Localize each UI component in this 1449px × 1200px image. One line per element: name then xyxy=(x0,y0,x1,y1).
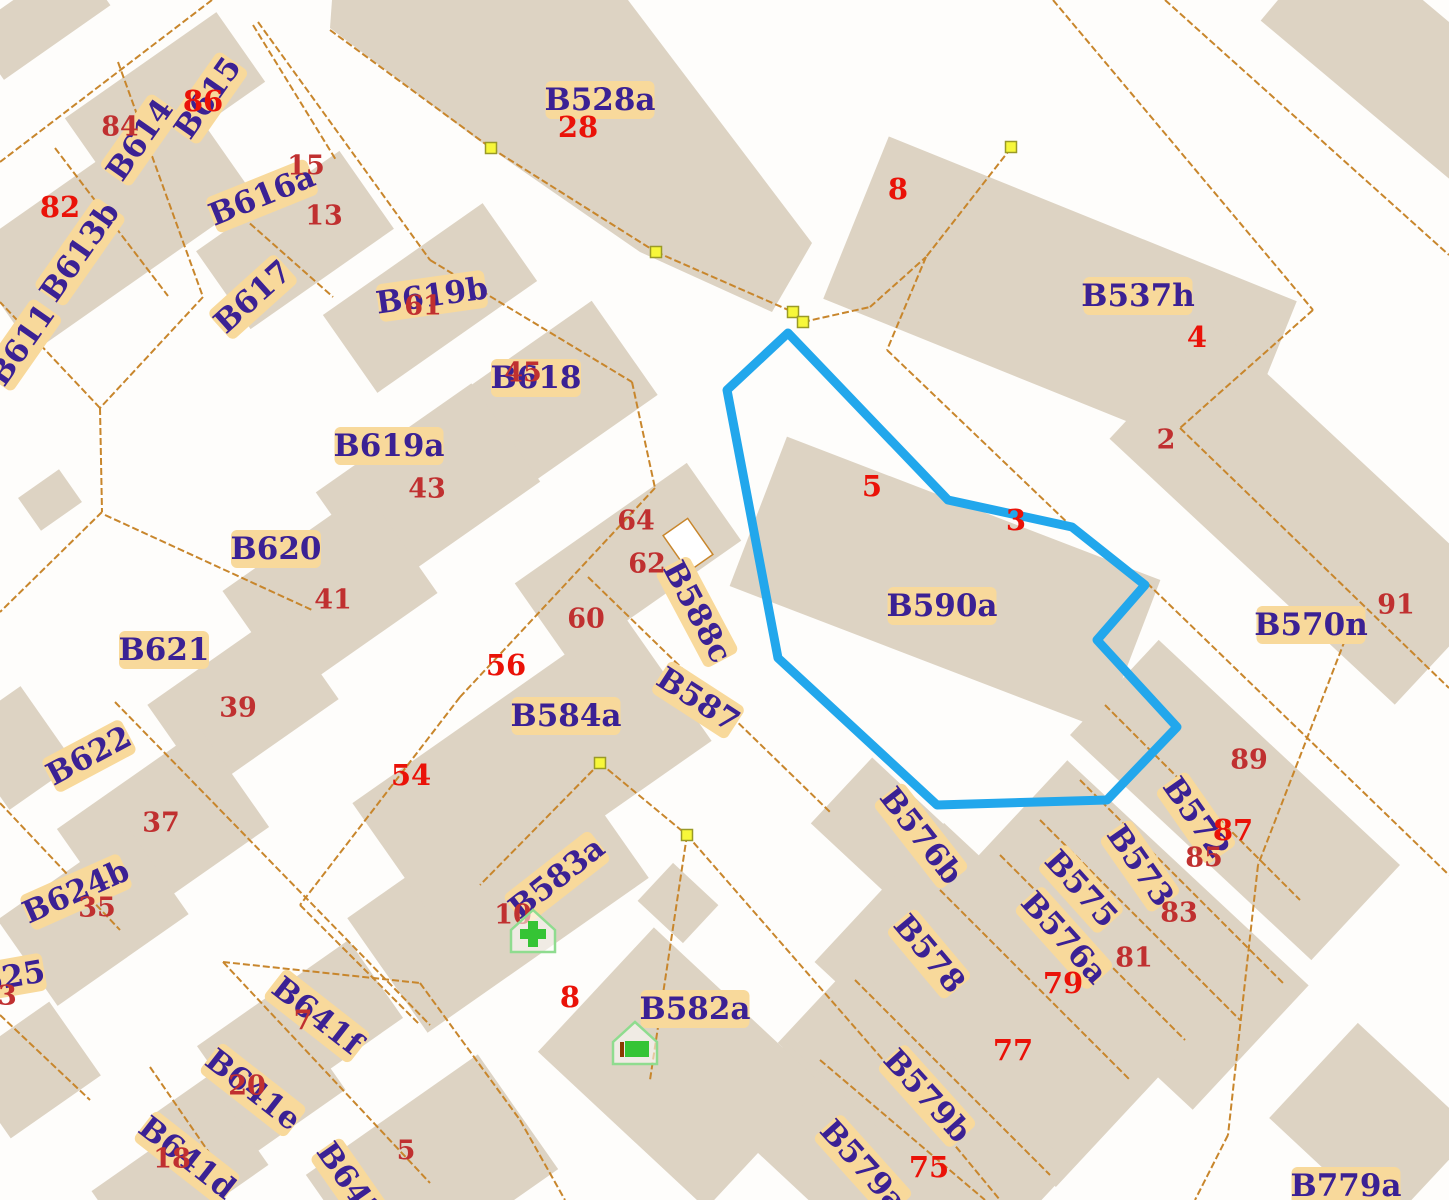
vertex-marker[interactable] xyxy=(1006,142,1017,153)
house-number: 83 xyxy=(1160,898,1198,929)
house-number: 75 xyxy=(909,1150,949,1184)
house-number: 5 xyxy=(397,1136,416,1167)
parcel-line xyxy=(100,408,102,512)
house-number: 77 xyxy=(993,1033,1033,1067)
house-number: 56 xyxy=(486,648,526,682)
building-footprint xyxy=(18,469,82,530)
vertex-marker[interactable] xyxy=(651,247,662,258)
parcel-label[interactable]: B621 xyxy=(119,631,210,669)
house-number: 8 xyxy=(560,980,580,1014)
house-number: 89 xyxy=(1230,745,1268,776)
map-svg: B615B614B613bB611B616aB617B528aB619bB618… xyxy=(0,0,1449,1200)
parcel-label-text: B582a xyxy=(640,991,751,1027)
building-footprint xyxy=(638,863,719,943)
house-number: 28 xyxy=(558,110,598,144)
house-number: 20 xyxy=(228,1071,266,1102)
house-number: 39 xyxy=(219,693,257,724)
parcel-label[interactable]: B619a xyxy=(334,427,445,465)
parcel-label[interactable]: B779a xyxy=(1291,1167,1402,1200)
door-icon xyxy=(620,1042,624,1057)
house-number: 3 xyxy=(1006,503,1026,537)
house-number: 5 xyxy=(862,469,882,503)
house-number: 43 xyxy=(408,474,446,505)
house-number: 91 xyxy=(1377,590,1415,621)
parcel-label-text: B621 xyxy=(119,632,210,668)
building-footprint xyxy=(730,437,1161,730)
parcel-line xyxy=(0,512,102,612)
building-footprint xyxy=(0,1002,101,1139)
house-number: 33 xyxy=(0,981,17,1012)
building-footprint xyxy=(0,0,110,80)
house-number: 86 xyxy=(183,84,223,118)
parcel-label-text: B622 xyxy=(40,719,137,793)
house-number: 18 xyxy=(153,1144,191,1175)
block-icon xyxy=(625,1041,649,1057)
vertex-marker[interactable] xyxy=(682,830,693,841)
house-number: 79 xyxy=(1043,966,1083,1000)
house-number: 84 xyxy=(101,112,139,143)
parcel-label-text: B619a xyxy=(334,428,445,464)
house-number: 54 xyxy=(391,758,431,792)
parcel-line xyxy=(253,25,336,160)
house-number: 13 xyxy=(305,201,343,232)
parcel-label[interactable]: B588c xyxy=(654,555,739,670)
parcel-label[interactable]: B537h xyxy=(1081,277,1194,315)
parcel-label[interactable]: B570n xyxy=(1254,606,1367,644)
house-number: 7 xyxy=(294,1006,313,1037)
house-number: 41 xyxy=(314,585,352,616)
house-number: 37 xyxy=(142,808,180,839)
house-number: 62 xyxy=(628,549,666,580)
parcel-line xyxy=(100,297,203,408)
parcel-label[interactable]: B582a xyxy=(640,990,751,1028)
vertex-marker[interactable] xyxy=(486,143,497,154)
parcel-label-text: B570n xyxy=(1254,607,1367,643)
parcel-label[interactable]: B590a xyxy=(887,587,998,625)
house-number: 64 xyxy=(617,506,655,537)
vertex-marker[interactable] xyxy=(798,317,809,328)
house-number: 85 xyxy=(1185,843,1223,874)
house-number: 61 xyxy=(404,291,442,322)
house-number: 82 xyxy=(40,190,80,224)
cadastral-map[interactable]: B615B614B613bB611B616aB617B528aB619bB618… xyxy=(0,0,1449,1200)
house-number: 8 xyxy=(888,172,908,206)
cross-icon xyxy=(520,929,546,939)
parcel-label-text: B620 xyxy=(231,531,322,567)
house-number: 35 xyxy=(78,893,116,924)
parcel-label-text: B779a xyxy=(1291,1168,1402,1200)
parcel-label[interactable]: B584a xyxy=(511,697,622,735)
house-number: 45 xyxy=(504,358,542,389)
parcel-label-text: B584a xyxy=(511,698,622,734)
parcel-label[interactable]: B620 xyxy=(231,530,322,568)
house-number: 81 xyxy=(1115,943,1153,974)
house-number: 15 xyxy=(287,151,325,182)
parcel-line xyxy=(1195,1135,1228,1200)
house-number: 4 xyxy=(1187,320,1207,354)
house-number: 60 xyxy=(567,604,605,635)
parcel-label-text: B590a xyxy=(887,588,998,624)
building-footprint xyxy=(1261,0,1449,181)
parcel-label-text: B537h xyxy=(1081,278,1194,314)
vertex-marker[interactable] xyxy=(595,758,606,769)
house-number: 2 xyxy=(1157,425,1176,456)
